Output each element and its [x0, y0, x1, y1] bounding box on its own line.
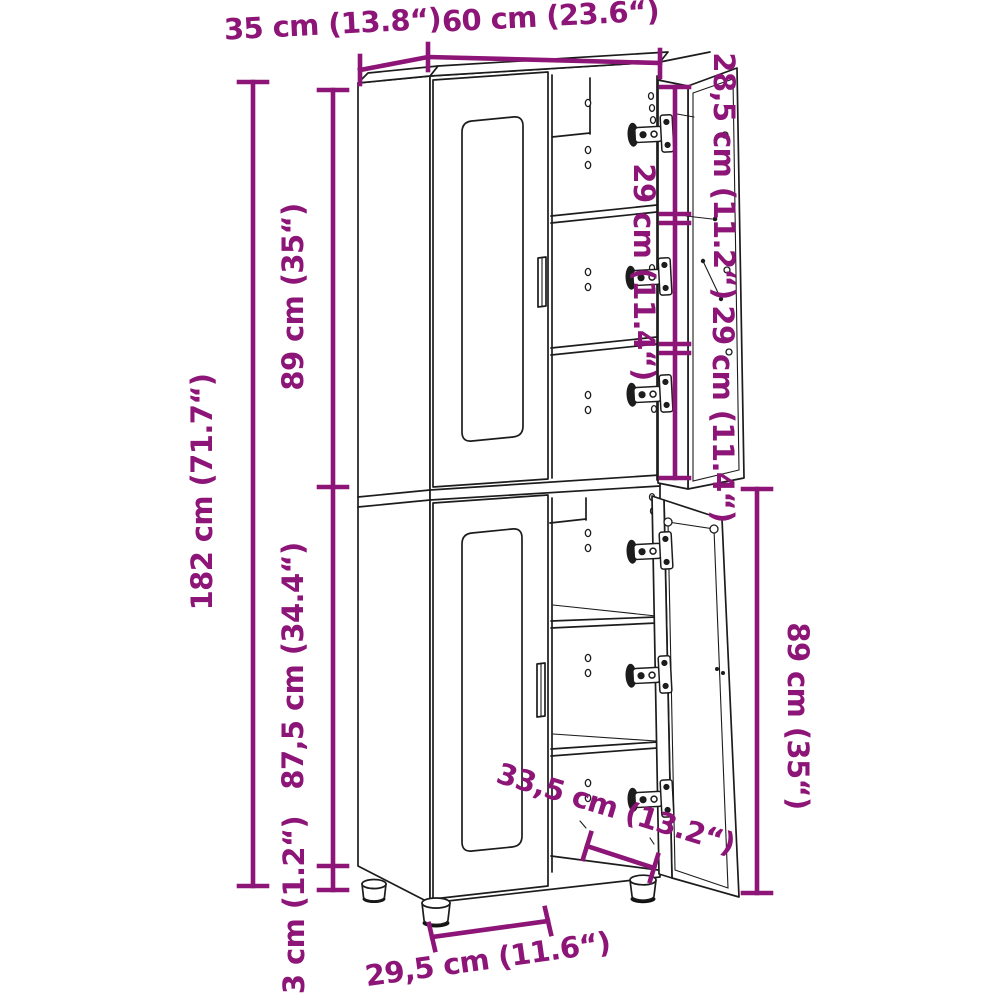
cabinet-dimension-diagram: 35 cm (13.8“) 60 cm (23.6“) 182 cm (71.7… — [0, 0, 1000, 1000]
dim-label-feet-span: 29,5 cm (11.6“) — [363, 925, 613, 993]
dim-total-height: 182 cm (71.7“) — [185, 82, 267, 886]
dim-label-top-compartment: 28,5 cm (11.2“) — [707, 52, 741, 299]
dim-label-feet-height: 3 cm (1.2“) — [277, 816, 311, 994]
dim-feet-span: 29,5 cm (11.6“) — [363, 908, 613, 993]
dim-label-upper-section: 89 cm (35“) — [276, 203, 310, 390]
upper-closed-door — [433, 72, 548, 487]
dim-lower-door-height: 89 cm (35“) — [743, 489, 815, 893]
lower-closed-door — [433, 495, 548, 899]
dim-label-depth: 35 cm (13.8“) — [223, 1, 442, 46]
dim-label-total-height: 182 cm (71.7“) — [185, 374, 219, 611]
upper-door-glass-recess — [462, 117, 523, 441]
side-panel — [358, 76, 430, 903]
dim-label-lower-section: 87,5 cm (34.4“) — [276, 542, 310, 789]
dim-label-middle-compartment: 29 cm (11.4“) — [627, 163, 661, 380]
dim-label-bottom-compartment: 29 cm (11.4“) — [706, 305, 740, 522]
lower-door-glass-recess — [462, 529, 522, 851]
foot-back-left — [362, 880, 386, 904]
lower-door-handle — [537, 663, 545, 717]
dim-label-width: 60 cm (23.6“) — [441, 0, 660, 39]
dim-label-lower-door-height: 89 cm (35“) — [781, 622, 815, 809]
foot-front-left — [422, 898, 450, 928]
dim-left-sections: 89 cm (35“) 87,5 cm (34.4“) 3 cm (1.2“) — [276, 90, 347, 994]
upper-door-handle — [538, 257, 546, 307]
